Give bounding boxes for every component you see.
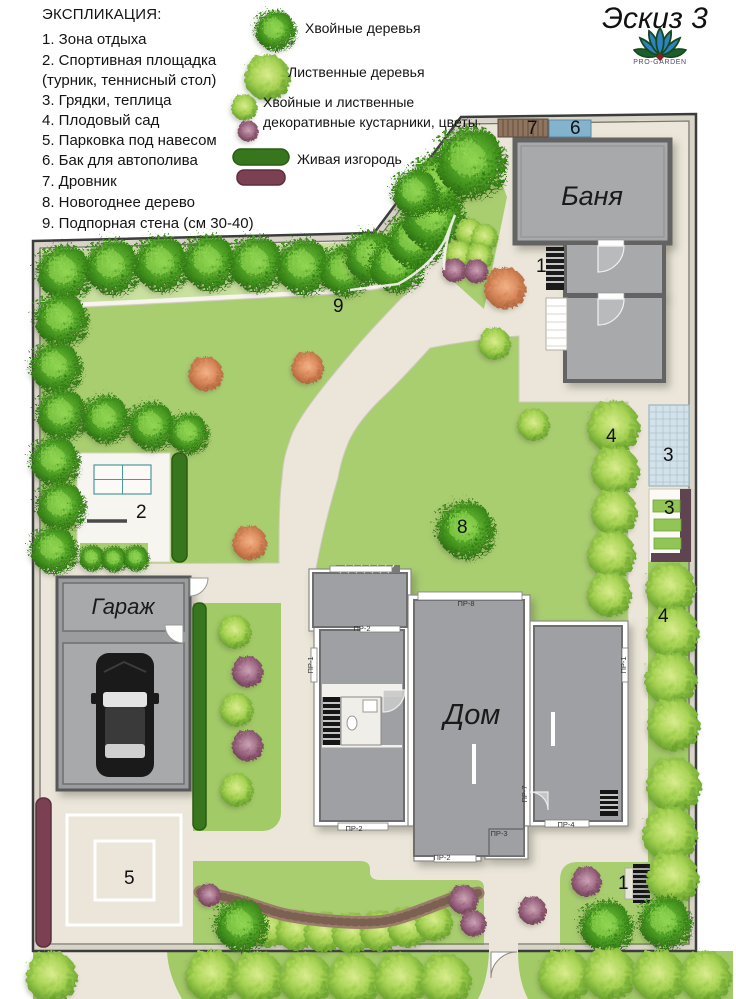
svg-text:7: 7: [527, 118, 538, 139]
svg-text:Живая изгородь: Живая изгородь: [297, 151, 402, 167]
svg-text:7. Дровник: 7. Дровник: [42, 173, 117, 190]
svg-text:4. Плодовый сад: 4. Плодовый сад: [42, 112, 160, 129]
svg-text:PRO-GARDEN: PRO-GARDEN: [633, 59, 686, 66]
svg-text:8: 8: [457, 517, 468, 538]
svg-text:3: 3: [663, 445, 674, 466]
svg-text:1: 1: [618, 873, 629, 894]
svg-text:ПР-2: ПР-2: [345, 824, 362, 833]
svg-text:ЭКСПЛИКАЦИЯ:: ЭКСПЛИКАЦИЯ:: [42, 6, 162, 23]
svg-text:2: 2: [136, 502, 147, 523]
svg-text:Хвойные и лиственные: Хвойные и лиственные: [263, 94, 414, 110]
svg-text:ПР-2: ПР-2: [353, 624, 370, 633]
svg-text:ПР-3: ПР-3: [490, 829, 507, 838]
svg-text:4: 4: [606, 426, 617, 447]
svg-text:Гараж: Гараж: [91, 594, 155, 619]
svg-text:Дом: Дом: [441, 699, 501, 731]
svg-text:6. Бак для автополива: 6. Бак для автополива: [42, 152, 198, 169]
svg-text:8. Новогоднее дерево: 8. Новогоднее дерево: [42, 194, 195, 211]
svg-text:4: 4: [658, 606, 669, 627]
svg-text:ПР-7: ПР-7: [520, 785, 529, 802]
svg-text:9: 9: [333, 296, 344, 317]
svg-text:6: 6: [570, 118, 581, 139]
svg-text:ПР-8: ПР-8: [457, 599, 474, 608]
svg-text:Лиственные деревья: Лиственные деревья: [288, 64, 425, 80]
svg-text:Баня: Баня: [561, 181, 623, 211]
svg-text:(турник, теннисный стол): (турник, теннисный стол): [42, 72, 216, 89]
svg-text:2. Спортивная площадка: 2. Спортивная площадка: [42, 52, 217, 69]
svg-text:1: 1: [536, 256, 547, 277]
svg-text:1. Зона отдыха: 1. Зона отдыха: [42, 31, 147, 48]
svg-text:Хвойные деревья: Хвойные деревья: [305, 20, 421, 36]
svg-text:декоративные кустарники, цветы: декоративные кустарники, цветы: [263, 114, 478, 130]
svg-text:ПР-1: ПР-1: [619, 656, 628, 673]
svg-text:3: 3: [664, 498, 675, 519]
svg-text:ПР-4: ПР-4: [557, 820, 574, 829]
svg-text:5. Парковка под навесом: 5. Парковка под навесом: [42, 132, 217, 149]
svg-text:Эскиз 3: Эскиз 3: [602, 2, 708, 35]
svg-text:ПР-1: ПР-1: [306, 656, 315, 673]
svg-text:3. Грядки, теплица: 3. Грядки, теплица: [42, 92, 172, 109]
svg-text:9. Подпорная стена (см 30-40): 9. Подпорная стена (см 30-40): [42, 215, 254, 232]
svg-text:ПР-2: ПР-2: [433, 853, 450, 862]
svg-text:5: 5: [124, 868, 135, 889]
